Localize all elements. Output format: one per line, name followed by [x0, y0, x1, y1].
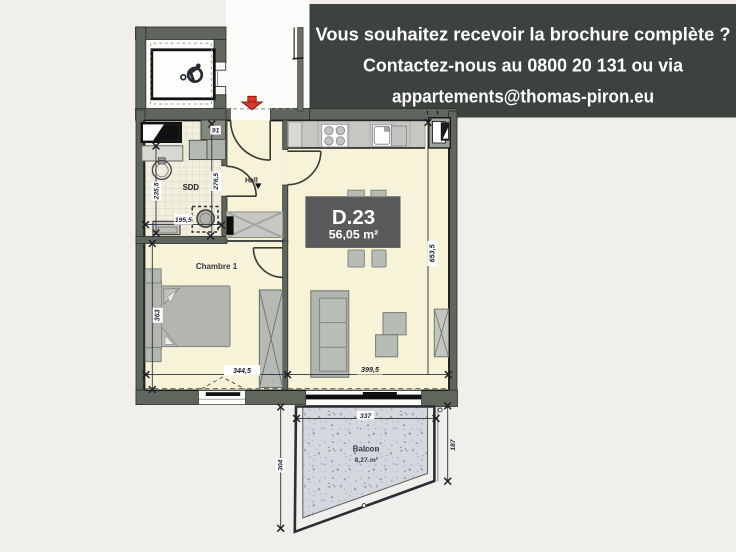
- svg-text:653,5: 653,5: [427, 243, 436, 262]
- svg-text:Contactez-nous au 0800 20 131: Contactez-nous au 0800 20 131 ou via: [363, 55, 684, 76]
- svg-text:Chambre 1: Chambre 1: [196, 262, 238, 271]
- svg-text:399,5: 399,5: [361, 365, 380, 374]
- svg-text:56,05 m²: 56,05 m²: [329, 228, 379, 242]
- svg-text:SDD: SDD: [183, 183, 200, 192]
- svg-text:91: 91: [212, 128, 220, 135]
- svg-text:187: 187: [450, 438, 457, 451]
- svg-text:195,5: 195,5: [175, 217, 192, 224]
- svg-text:Balcon: Balcon: [353, 444, 380, 453]
- svg-text:337: 337: [360, 413, 373, 420]
- svg-text:276,5: 276,5: [213, 173, 220, 191]
- svg-text:8,27 m²: 8,27 m²: [355, 457, 379, 464]
- svg-text:235,5: 235,5: [153, 182, 160, 200]
- svg-text:Vous souhaitez recevoir la bro: Vous souhaitez recevoir la brochure comp…: [316, 24, 731, 45]
- svg-text:appartements@thomas-piron.eu: appartements@thomas-piron.eu: [392, 86, 654, 107]
- svg-text:363: 363: [155, 309, 162, 321]
- svg-text:D.23: D.23: [332, 206, 375, 229]
- svg-text:304: 304: [277, 459, 284, 471]
- svg-text:344,5: 344,5: [233, 366, 252, 375]
